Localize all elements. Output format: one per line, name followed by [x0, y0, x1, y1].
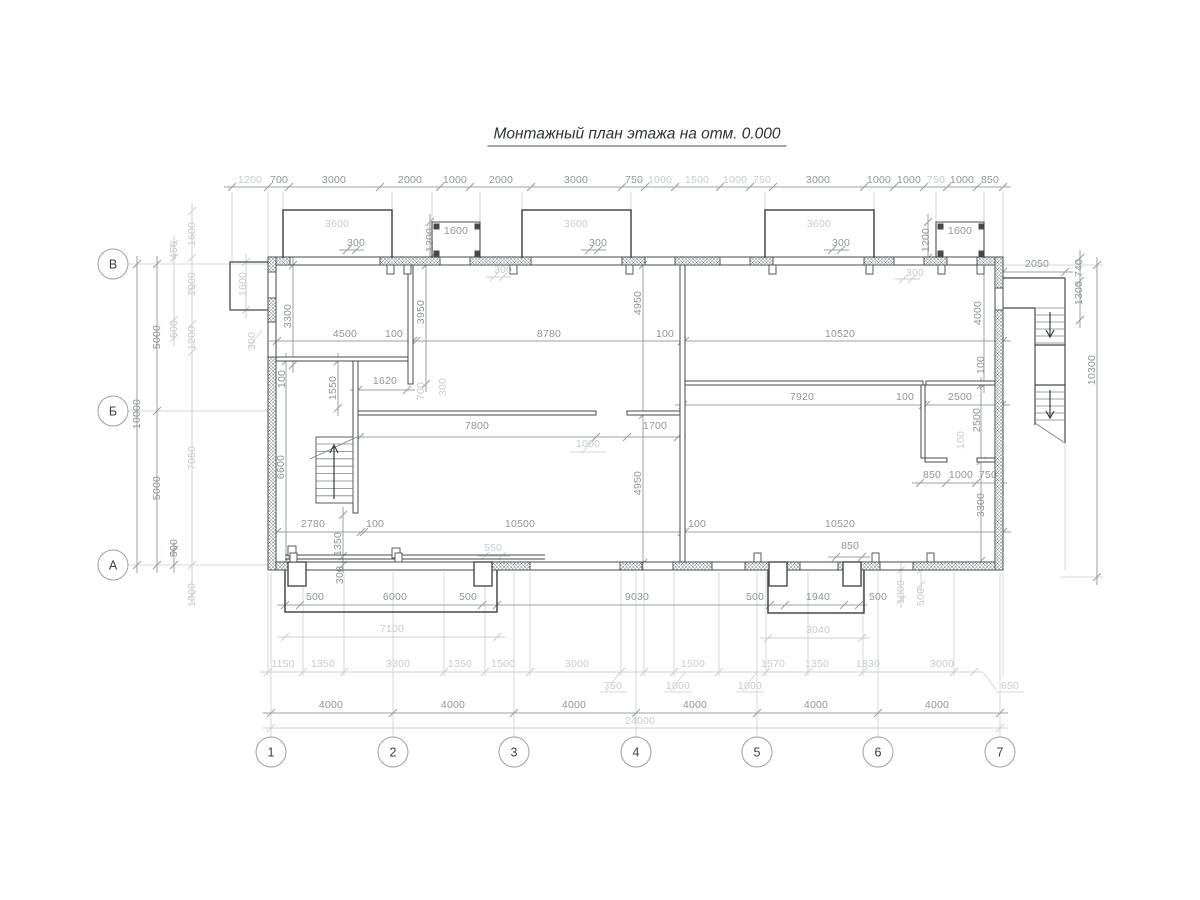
dim-label: 4500 — [333, 328, 357, 340]
dim-label: 2050 — [1025, 258, 1049, 270]
dim-label: 1500 — [681, 658, 705, 670]
dim-label: 4950 — [632, 471, 644, 495]
dim-label: 3600 — [564, 218, 588, 230]
dim-label: 1000 — [443, 174, 467, 186]
axis-bubble-column: 1 — [256, 737, 287, 768]
dim-label: 450 — [168, 241, 180, 259]
axis-bubble-column: 6 — [863, 737, 894, 768]
dim-label: 1000 — [648, 174, 672, 186]
dim-label: 2000 — [489, 174, 513, 186]
dim-label: 4950 — [632, 291, 644, 315]
dim-label: 9030 — [625, 591, 649, 603]
dim-label: 750 — [625, 174, 643, 186]
dim-label: 3300 — [282, 304, 294, 328]
dim-label: 3000 — [564, 174, 588, 186]
dim-label: 1940 — [806, 591, 830, 603]
dim-label: 750 — [927, 174, 945, 186]
dim-label: 740 — [1073, 259, 1085, 277]
dim-label: 10000 — [131, 399, 143, 429]
dim-label: 3300 — [386, 658, 410, 670]
axis-bubble-column: 5 — [742, 737, 773, 768]
dim-label: 500 — [746, 591, 764, 603]
dim-label: 1300 — [1073, 281, 1085, 305]
dim-label: 4000 — [683, 699, 707, 711]
dim-label: 8780 — [537, 328, 561, 340]
dim-label: 1000 — [576, 438, 600, 450]
dim-label: 300 — [906, 267, 924, 279]
dim-label: 1000 — [949, 469, 973, 481]
dim-label: 100 — [688, 518, 706, 530]
axis-bubble-column: 4 — [621, 737, 652, 768]
dim-label: 750 — [753, 174, 771, 186]
dim-label: 500 — [459, 591, 477, 603]
dim-label: 1000 — [666, 680, 690, 692]
dim-label: 3000 — [322, 174, 346, 186]
dim-label: 7920 — [790, 391, 814, 403]
dim-label: 4000 — [441, 699, 465, 711]
dim-label: 500 — [306, 591, 324, 603]
dim-label: 1150 — [271, 658, 294, 670]
dim-label: 100 — [656, 328, 674, 340]
dim-label: 100 — [385, 328, 403, 340]
dim-label: 2500 — [971, 408, 983, 432]
dim-label: 100 — [366, 518, 384, 530]
dim-label: 500 — [869, 591, 887, 603]
drawing-sheet: 1200700300020001000200030007501000150010… — [0, 0, 1200, 900]
dim-label: 4000 — [972, 301, 984, 325]
dim-label: 7100 — [380, 623, 404, 635]
dim-label: 750 — [979, 469, 997, 481]
dim-label: 300 — [494, 264, 512, 276]
dim-label: 7800 — [465, 420, 489, 432]
dim-label: 1350 — [805, 658, 829, 670]
axis-bubble-row: Б — [98, 396, 129, 427]
dim-label: 1200 — [238, 174, 262, 186]
dim-label: 1000 — [950, 174, 974, 186]
dim-label: 4000 — [804, 699, 828, 711]
axis-bubble-column: 2 — [378, 737, 409, 768]
dim-label: 10300 — [1086, 355, 1098, 385]
dim-label: 4000 — [925, 699, 949, 711]
dim-label: 1600 — [237, 272, 249, 296]
axis-bubble-row: А — [98, 550, 129, 581]
dim-label: 5000 — [151, 325, 163, 349]
dim-label: 1600 — [444, 225, 468, 237]
dim-label: 3040 — [806, 624, 830, 636]
dim-label: 5000 — [151, 476, 163, 500]
dim-label: 10520 — [825, 518, 855, 530]
dim-label: 1200 — [920, 228, 932, 252]
dim-label: 1200 — [186, 326, 198, 350]
dim-label: 1200 — [424, 228, 436, 252]
dim-label: 2500 — [948, 391, 972, 403]
dim-label: 10500 — [505, 518, 535, 530]
axis-bubble-row: В — [98, 249, 129, 280]
dim-label: 6000 — [383, 591, 407, 603]
dim-label: 1620 — [373, 375, 397, 387]
dim-label: 1550 — [327, 376, 339, 400]
dim-label: 600 — [168, 320, 180, 338]
drawing-title: Монтажный план этажа на отм. 0.000 — [487, 126, 786, 147]
dim-label: 3950 — [415, 300, 427, 324]
dim-label: 550 — [484, 542, 502, 554]
dim-label: 300 — [589, 237, 607, 249]
dim-label: 3000 — [565, 658, 589, 670]
dim-label: 650 — [1001, 680, 1019, 692]
axis-bubble-column: 3 — [499, 737, 530, 768]
dim-label: 1000 — [738, 680, 762, 692]
dim-label: 3300 — [975, 493, 987, 517]
dim-label: 1000 — [895, 580, 907, 604]
dim-label: 1350 — [332, 532, 344, 556]
dim-label: 700 — [270, 174, 288, 186]
dim-label: 3600 — [807, 218, 831, 230]
dim-label: 300 — [347, 237, 365, 249]
dim-label: 1000 — [867, 174, 891, 186]
dim-label: 1600 — [948, 225, 972, 237]
dim-label: 1830 — [856, 658, 880, 670]
dim-label: 3000 — [806, 174, 830, 186]
dim-label: 1350 — [448, 658, 472, 670]
dim-label: 1600 — [186, 222, 198, 246]
dim-label: 850 — [923, 469, 941, 481]
dim-label: 4000 — [319, 699, 343, 711]
dim-label: 1500 — [685, 174, 709, 186]
dim-label: 100 — [276, 370, 288, 388]
dim-label: 300 — [832, 237, 850, 249]
dim-label: 1570 — [761, 658, 785, 670]
dim-label: 300 — [246, 332, 258, 350]
dim-label: 850 — [981, 174, 999, 186]
dim-label: 10520 — [825, 328, 855, 340]
dim-label: 6600 — [275, 455, 287, 479]
dim-label: 100 — [975, 356, 987, 374]
dim-label: 1000 — [723, 174, 747, 186]
dim-label: 300 — [334, 566, 346, 584]
dim-label: 3000 — [930, 658, 954, 670]
dim-label: 2780 — [301, 518, 325, 530]
dim-label: 4000 — [562, 699, 586, 711]
dim-label: 850 — [841, 540, 859, 552]
dim-label: 100 — [896, 391, 914, 403]
dim-label: 1000 — [186, 272, 198, 296]
dim-label: 1700 — [643, 420, 667, 432]
dim-label: 500 — [915, 588, 927, 606]
dim-label: 1350 — [311, 658, 335, 670]
dim-label: 750 — [604, 680, 622, 692]
dim-label: 300 — [437, 378, 449, 396]
dim-label: 1000 — [186, 583, 198, 607]
dim-label: 500 — [168, 539, 180, 557]
dim-label: 3600 — [325, 218, 349, 230]
dim-label: 24000 — [625, 715, 655, 727]
dim-label: 1500 — [491, 658, 515, 670]
axis-bubble-column: 7 — [985, 737, 1016, 768]
dim-label: 7050 — [186, 446, 198, 470]
dim-label: 700 — [415, 382, 427, 400]
dim-label: 100 — [955, 431, 967, 449]
dim-label: 1000 — [897, 174, 921, 186]
dim-label: 2000 — [398, 174, 422, 186]
